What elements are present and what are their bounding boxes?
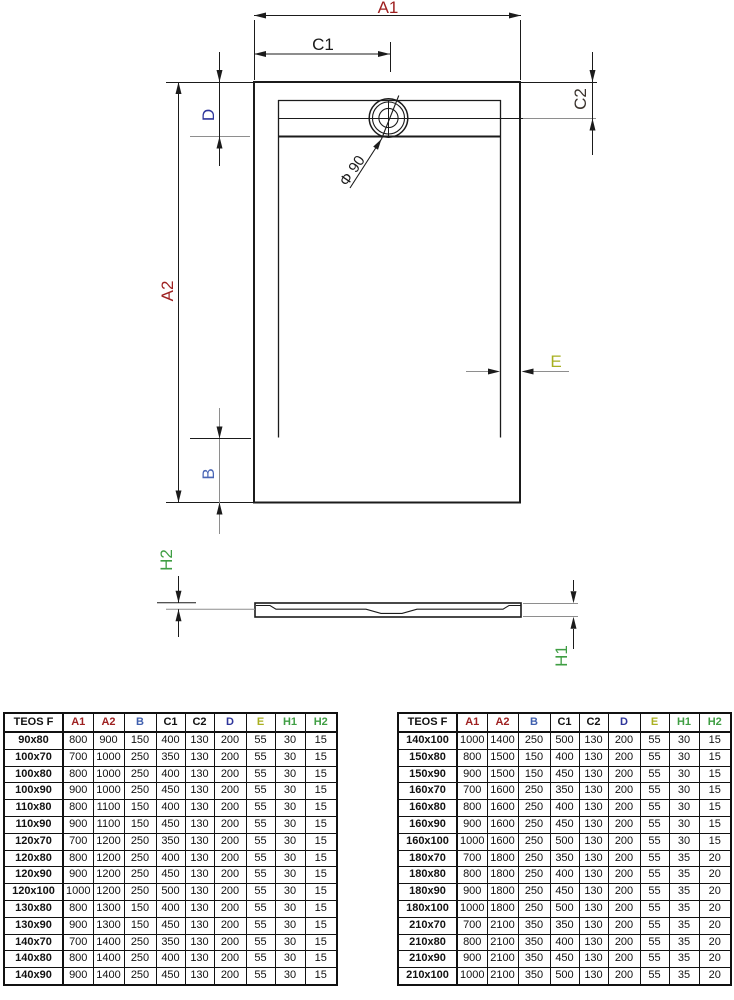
value-cell: 900 (457, 951, 487, 968)
value-cell: 450 (550, 766, 579, 783)
value-cell: 20 (699, 900, 731, 917)
value-cell: 200 (608, 766, 640, 783)
row-label-cell: 140x80 (4, 951, 63, 968)
value-cell: 15 (699, 833, 731, 850)
value-cell: 350 (156, 749, 185, 766)
table-row: 140x909001400250450130200553015 (4, 968, 337, 985)
value-cell: 1400 (93, 951, 124, 968)
value-cell: 1400 (487, 732, 518, 749)
value-cell: 200 (214, 732, 246, 749)
value-cell: 200 (608, 850, 640, 867)
value-cell: 150 (124, 900, 156, 917)
value-cell: 130 (579, 800, 608, 817)
value-cell: 1000 (457, 900, 487, 917)
value-cell: 700 (63, 934, 93, 951)
drain-icon (369, 96, 408, 140)
value-cell: 55 (246, 867, 275, 884)
value-cell: 2100 (487, 951, 518, 968)
value-cell: 30 (275, 833, 305, 850)
value-cell: 1800 (487, 900, 518, 917)
value-cell: 130 (185, 833, 214, 850)
header-cell: H1 (669, 713, 699, 732)
table-row: 120x808001200250400130200553015 (4, 850, 337, 867)
header-cell: C2 (579, 713, 608, 732)
value-cell: 130 (185, 934, 214, 951)
value-cell: 30 (275, 884, 305, 901)
table-row: 110x909001100150450130200553015 (4, 816, 337, 833)
value-cell: 250 (124, 850, 156, 867)
dim-e: E (466, 352, 569, 375)
value-cell: 200 (608, 800, 640, 817)
value-cell: 450 (550, 951, 579, 968)
tray-technical-drawing: Φ 90 A1 C1 D (0, 0, 734, 700)
value-cell: 900 (457, 884, 487, 901)
value-cell: 55 (640, 917, 669, 934)
value-cell: 30 (275, 867, 305, 884)
value-cell: 1100 (93, 816, 124, 833)
value-cell: 200 (608, 884, 640, 901)
value-cell: 800 (63, 900, 93, 917)
value-cell: 1400 (93, 934, 124, 951)
value-cell: 15 (305, 732, 337, 749)
value-cell: 15 (699, 816, 731, 833)
value-cell: 800 (63, 732, 93, 749)
value-cell: 130 (185, 816, 214, 833)
value-cell: 350 (518, 934, 550, 951)
value-cell: 130 (579, 867, 608, 884)
table-row: 100x808001000250400130200553015 (4, 766, 337, 783)
value-cell: 55 (640, 934, 669, 951)
row-label-cell: 120x90 (4, 867, 63, 884)
value-cell: 250 (518, 732, 550, 749)
table-header-row: TEOS FA1A2BC1C2DEH1H2 (4, 713, 337, 732)
value-cell: 130 (579, 850, 608, 867)
value-cell: 15 (305, 766, 337, 783)
value-cell: 20 (699, 951, 731, 968)
value-cell: 130 (185, 749, 214, 766)
header-cell: H2 (699, 713, 731, 732)
header-cell: A2 (487, 713, 518, 732)
value-cell: 55 (246, 749, 275, 766)
value-cell: 30 (275, 850, 305, 867)
value-cell: 130 (185, 884, 214, 901)
header-cell: D (608, 713, 640, 732)
row-label-cell: 180x90 (398, 884, 457, 901)
value-cell: 130 (579, 951, 608, 968)
value-cell: 1600 (487, 816, 518, 833)
row-label-cell: 100x90 (4, 783, 63, 800)
row-label-cell: 210x70 (398, 917, 457, 934)
value-cell: 35 (669, 917, 699, 934)
dimension-table-left: TEOS FA1A2BC1C2DEH1H290x8080090015040013… (3, 712, 338, 986)
tray-outer-outline (254, 82, 520, 503)
header-cell: C1 (550, 713, 579, 732)
table-row: 210x707002100350350130200553520 (398, 917, 731, 934)
side-right-extensions (523, 604, 578, 617)
value-cell: 130 (185, 968, 214, 985)
value-cell: 500 (550, 968, 579, 985)
value-cell: 250 (124, 867, 156, 884)
value-cell: 30 (669, 766, 699, 783)
value-cell: 200 (214, 968, 246, 985)
value-cell: 30 (275, 900, 305, 917)
row-label-cell: 160x80 (398, 800, 457, 817)
side-profile-outline (255, 603, 521, 617)
header-cell: TEOS F (398, 713, 457, 732)
row-label-cell: 180x70 (398, 850, 457, 867)
value-cell: 55 (246, 732, 275, 749)
row-label-cell: 140x90 (4, 968, 63, 985)
row-label-cell: 160x70 (398, 783, 457, 800)
value-cell: 55 (640, 900, 669, 917)
table-row: 160x808001600250400130200553015 (398, 800, 731, 817)
value-cell: 800 (63, 766, 93, 783)
table-row: 90x80800900150400130200553015 (4, 732, 337, 749)
value-cell: 200 (214, 884, 246, 901)
value-cell: 55 (246, 884, 275, 901)
header-cell: TEOS F (4, 713, 63, 732)
dim-b: B (190, 408, 251, 534)
value-cell: 450 (156, 968, 185, 985)
value-cell: 350 (518, 917, 550, 934)
value-cell: 250 (518, 900, 550, 917)
value-cell: 15 (305, 800, 337, 817)
value-cell: 200 (214, 951, 246, 968)
value-cell: 400 (156, 850, 185, 867)
table-row: 140x707001400250350130200553015 (4, 934, 337, 951)
table-row: 210x10010002100350500130200553520 (398, 968, 731, 985)
value-cell: 900 (63, 917, 93, 934)
value-cell: 1000 (63, 884, 93, 901)
value-cell: 200 (214, 867, 246, 884)
value-cell: 30 (275, 917, 305, 934)
value-cell: 200 (214, 917, 246, 934)
table-row: 130x909001300150450130200553015 (4, 917, 337, 934)
value-cell: 1200 (93, 850, 124, 867)
value-cell: 20 (699, 968, 731, 985)
value-cell: 30 (275, 951, 305, 968)
value-cell: 35 (669, 934, 699, 951)
row-label-cell: 100x80 (4, 766, 63, 783)
table-row: 160x10010001600250500130200553015 (398, 833, 731, 850)
header-cell: A1 (63, 713, 93, 732)
value-cell: 400 (550, 749, 579, 766)
value-cell: 250 (124, 749, 156, 766)
value-cell: 250 (518, 850, 550, 867)
value-cell: 130 (579, 732, 608, 749)
value-cell: 55 (640, 884, 669, 901)
table-row: 120x909001200250450130200553015 (4, 867, 337, 884)
value-cell: 200 (214, 766, 246, 783)
value-cell: 250 (518, 884, 550, 901)
row-label-cell: 110x80 (4, 800, 63, 817)
table-row: 110x808001100150400130200553015 (4, 800, 337, 817)
value-cell: 200 (214, 816, 246, 833)
value-cell: 350 (156, 934, 185, 951)
value-cell: 1200 (93, 867, 124, 884)
value-cell: 20 (699, 850, 731, 867)
table-header-row: TEOS FA1A2BC1C2DEH1H2 (398, 713, 731, 732)
value-cell: 200 (214, 800, 246, 817)
value-cell: 250 (124, 884, 156, 901)
dim-label-c2: C2 (571, 88, 590, 110)
value-cell: 15 (699, 783, 731, 800)
value-cell: 150 (518, 749, 550, 766)
value-cell: 1000 (457, 732, 487, 749)
row-label-cell: 150x90 (398, 766, 457, 783)
value-cell: 55 (640, 951, 669, 968)
value-cell: 250 (124, 951, 156, 968)
value-cell: 20 (699, 934, 731, 951)
row-label-cell: 210x100 (398, 968, 457, 985)
value-cell: 700 (457, 850, 487, 867)
dim-d: D (166, 52, 254, 166)
value-cell: 30 (275, 732, 305, 749)
value-cell: 500 (550, 732, 579, 749)
value-cell: 400 (156, 800, 185, 817)
value-cell: 35 (669, 951, 699, 968)
value-cell: 130 (185, 900, 214, 917)
value-cell: 55 (246, 917, 275, 934)
value-cell: 1000 (457, 968, 487, 985)
value-cell: 15 (699, 732, 731, 749)
row-label-cell: 180x100 (398, 900, 457, 917)
value-cell: 1200 (93, 884, 124, 901)
value-cell: 1600 (487, 833, 518, 850)
value-cell: 15 (305, 884, 337, 901)
dim-label-a1: A1 (378, 0, 399, 17)
value-cell: 700 (457, 917, 487, 934)
value-cell: 15 (305, 968, 337, 985)
value-cell: 250 (518, 800, 550, 817)
row-label-cell: 140x100 (398, 732, 457, 749)
value-cell: 350 (518, 951, 550, 968)
value-cell: 55 (246, 816, 275, 833)
table-row: 160x707001600250350130200553015 (398, 783, 731, 800)
value-cell: 130 (579, 934, 608, 951)
dim-label-a2: A2 (158, 281, 177, 302)
header-cell: H1 (275, 713, 305, 732)
value-cell: 700 (63, 833, 93, 850)
value-cell: 15 (305, 867, 337, 884)
value-cell: 55 (246, 900, 275, 917)
value-cell: 130 (185, 732, 214, 749)
dim-label-e: E (550, 352, 561, 371)
row-label-cell: 120x80 (4, 850, 63, 867)
value-cell: 130 (185, 951, 214, 968)
table-row: 150x808001500150400130200553015 (398, 749, 731, 766)
value-cell: 35 (669, 867, 699, 884)
header-cell: B (518, 713, 550, 732)
value-cell: 55 (640, 833, 669, 850)
value-cell: 800 (63, 850, 93, 867)
value-cell: 150 (518, 766, 550, 783)
value-cell: 55 (640, 766, 669, 783)
value-cell: 15 (699, 749, 731, 766)
drawing-sheet: Φ 90 A1 C1 D (0, 0, 734, 1000)
value-cell: 55 (246, 850, 275, 867)
value-cell: 400 (156, 766, 185, 783)
value-cell: 200 (214, 749, 246, 766)
value-cell: 55 (246, 951, 275, 968)
top-view: Φ 90 (254, 82, 596, 503)
value-cell: 130 (185, 917, 214, 934)
value-cell: 130 (185, 800, 214, 817)
table-row: 180x707001800250350130200553520 (398, 850, 731, 867)
dim-label-d: D (199, 109, 218, 121)
value-cell: 15 (305, 850, 337, 867)
value-cell: 55 (640, 749, 669, 766)
value-cell: 1200 (93, 833, 124, 850)
value-cell: 400 (156, 732, 185, 749)
value-cell: 30 (669, 833, 699, 850)
row-label-cell: 150x80 (398, 749, 457, 766)
table-row: 210x909002100350450130200553520 (398, 951, 731, 968)
row-label-cell: 100x70 (4, 749, 63, 766)
value-cell: 30 (669, 800, 699, 817)
value-cell: 15 (305, 833, 337, 850)
value-cell: 1000 (93, 766, 124, 783)
header-cell: C1 (156, 713, 185, 732)
value-cell: 900 (457, 766, 487, 783)
value-cell: 30 (275, 934, 305, 951)
value-cell: 250 (518, 867, 550, 884)
value-cell: 55 (640, 850, 669, 867)
value-cell: 200 (608, 968, 640, 985)
value-cell: 30 (669, 783, 699, 800)
value-cell: 30 (275, 800, 305, 817)
value-cell: 250 (124, 968, 156, 985)
value-cell: 30 (275, 968, 305, 985)
value-cell: 15 (305, 900, 337, 917)
table-row: 180x10010001800250500130200553520 (398, 900, 731, 917)
drain-diameter-label: Φ 90 (336, 153, 368, 190)
value-cell: 130 (579, 816, 608, 833)
value-cell: 800 (63, 951, 93, 968)
value-cell: 800 (63, 800, 93, 817)
value-cell: 800 (457, 800, 487, 817)
value-cell: 55 (640, 968, 669, 985)
value-cell: 500 (156, 884, 185, 901)
value-cell: 200 (608, 749, 640, 766)
dim-a1: A1 (254, 0, 521, 80)
value-cell: 55 (640, 783, 669, 800)
header-cell: E (246, 713, 275, 732)
dim-label-b: B (199, 468, 218, 479)
value-cell: 350 (550, 917, 579, 934)
header-cell: B (124, 713, 156, 732)
header-cell: H2 (305, 713, 337, 732)
table-row: 120x10010001200250500130200553015 (4, 884, 337, 901)
value-cell: 30 (669, 749, 699, 766)
row-label-cell: 90x80 (4, 732, 63, 749)
value-cell: 200 (214, 850, 246, 867)
table-row: 120x707001200250350130200553015 (4, 833, 337, 850)
table-row: 100x707001000250350130200553015 (4, 749, 337, 766)
value-cell: 800 (457, 867, 487, 884)
value-cell: 900 (63, 783, 93, 800)
value-cell: 55 (640, 800, 669, 817)
value-cell: 20 (699, 867, 731, 884)
value-cell: 15 (305, 951, 337, 968)
dim-a2: A2 (158, 82, 254, 503)
value-cell: 400 (156, 951, 185, 968)
value-cell: 30 (275, 783, 305, 800)
value-cell: 400 (156, 900, 185, 917)
value-cell: 15 (305, 934, 337, 951)
dim-label-h1: H1 (552, 645, 571, 667)
value-cell: 20 (699, 884, 731, 901)
value-cell: 130 (579, 968, 608, 985)
value-cell: 1300 (93, 900, 124, 917)
value-cell: 130 (185, 850, 214, 867)
table-row: 140x10010001400250500130200553015 (398, 732, 731, 749)
value-cell: 130 (579, 917, 608, 934)
value-cell: 1500 (487, 766, 518, 783)
value-cell: 350 (550, 850, 579, 867)
value-cell: 200 (608, 934, 640, 951)
value-cell: 130 (579, 900, 608, 917)
value-cell: 200 (214, 833, 246, 850)
value-cell: 35 (669, 850, 699, 867)
row-label-cell: 210x80 (398, 934, 457, 951)
value-cell: 1400 (93, 968, 124, 985)
table-row: 210x808002100350400130200553520 (398, 934, 731, 951)
value-cell: 450 (156, 816, 185, 833)
value-cell: 400 (550, 934, 579, 951)
value-cell: 400 (550, 867, 579, 884)
value-cell: 900 (93, 732, 124, 749)
value-cell: 350 (156, 833, 185, 850)
value-cell: 200 (608, 917, 640, 934)
header-cell: A1 (457, 713, 487, 732)
value-cell: 35 (669, 900, 699, 917)
header-cell: A2 (93, 713, 124, 732)
row-label-cell: 110x90 (4, 816, 63, 833)
value-cell: 350 (518, 968, 550, 985)
value-cell: 55 (246, 783, 275, 800)
value-cell: 450 (156, 783, 185, 800)
dim-label-h2: H2 (157, 549, 176, 571)
dim-label-c1: C1 (312, 35, 334, 54)
value-cell: 30 (275, 766, 305, 783)
value-cell: 400 (550, 800, 579, 817)
value-cell: 900 (63, 816, 93, 833)
tray-inner-outline (278, 100, 501, 438)
value-cell: 150 (124, 917, 156, 934)
value-cell: 200 (214, 934, 246, 951)
value-cell: 1600 (487, 800, 518, 817)
header-cell: D (214, 713, 246, 732)
value-cell: 200 (608, 732, 640, 749)
value-cell: 55 (246, 766, 275, 783)
value-cell: 130 (185, 783, 214, 800)
value-cell: 15 (699, 800, 731, 817)
value-cell: 1000 (93, 749, 124, 766)
value-cell: 1500 (487, 749, 518, 766)
value-cell: 55 (640, 732, 669, 749)
value-cell: 2100 (487, 917, 518, 934)
value-cell: 350 (550, 783, 579, 800)
value-cell: 55 (246, 800, 275, 817)
value-cell: 55 (246, 968, 275, 985)
value-cell: 15 (305, 749, 337, 766)
value-cell: 130 (579, 766, 608, 783)
value-cell: 200 (608, 900, 640, 917)
value-cell: 15 (305, 783, 337, 800)
table-row: 150x909001500150450130200553015 (398, 766, 731, 783)
value-cell: 30 (669, 732, 699, 749)
